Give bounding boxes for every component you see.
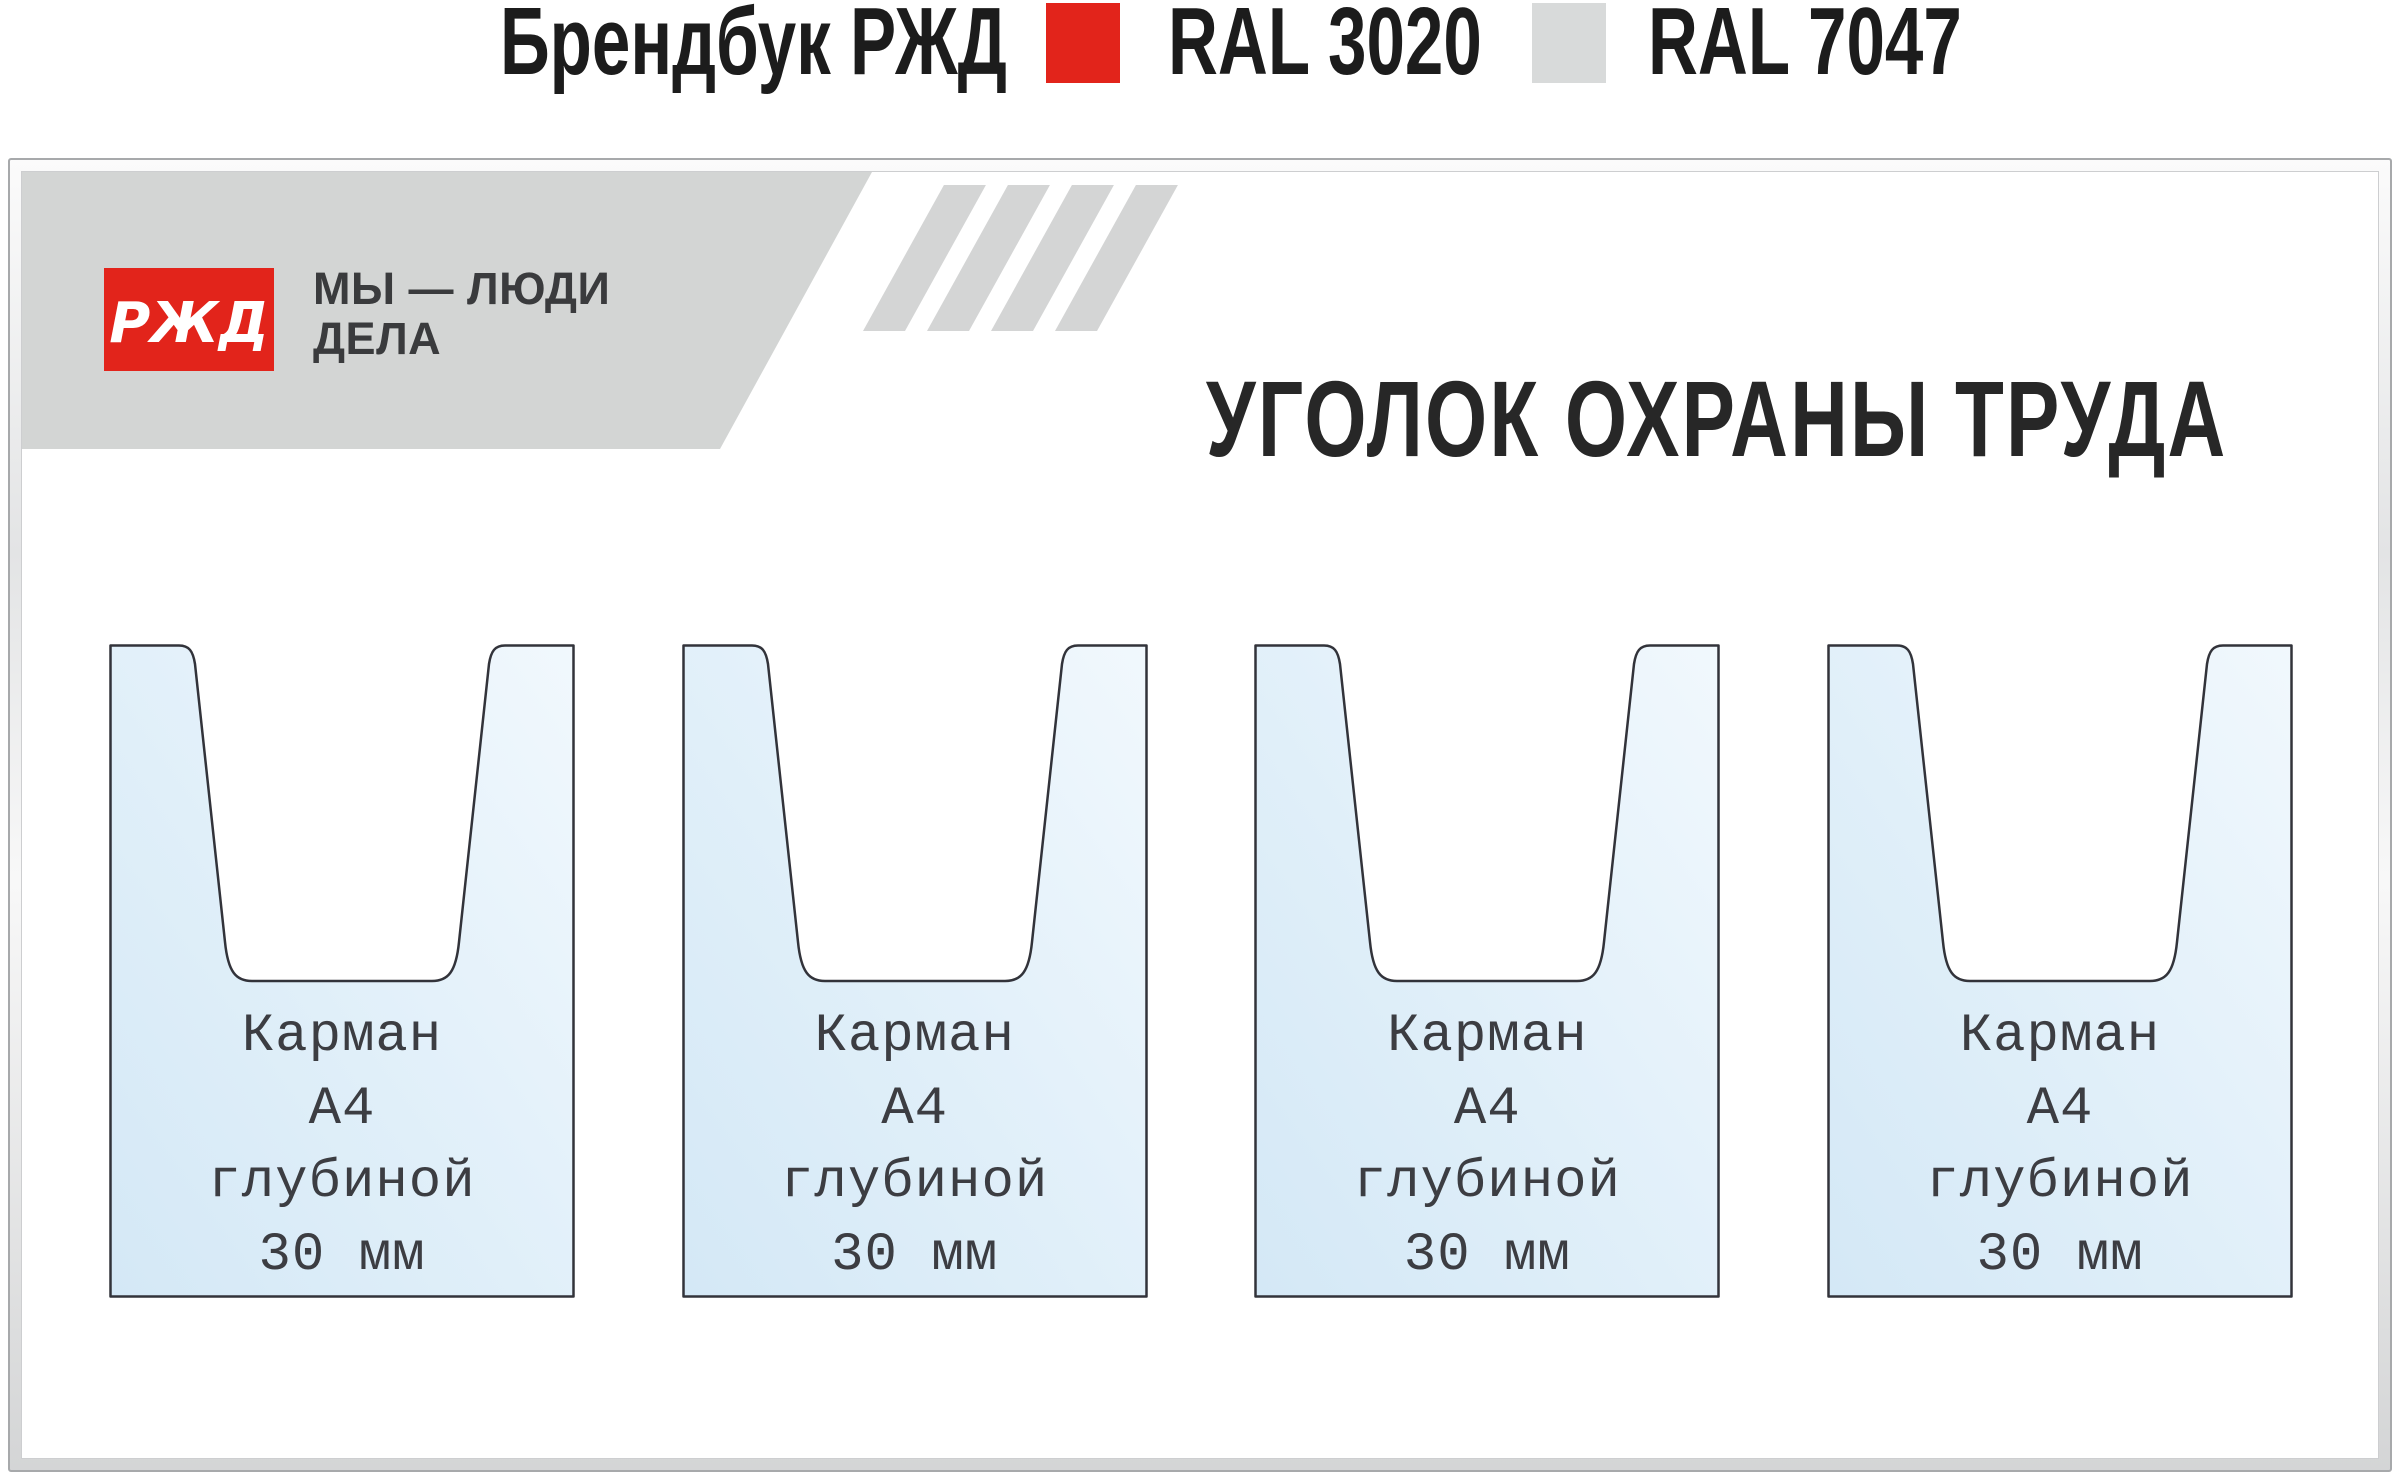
pocket-label: Карман А4 глубиной 30 мм	[109, 1000, 575, 1292]
stand-surface: РЖД МЫ — ЛЮДИ ДЕЛА УГОЛОК ОХРАНЫ ТРУДА	[21, 171, 2379, 1459]
ral-3020-swatch	[1046, 3, 1120, 83]
rzhd-logo-text: РЖД	[109, 291, 268, 356]
brandbook-label: Брендбук РЖД	[500, 0, 1007, 90]
pocket-label: Карман А4 глубиной 30 мм	[1827, 1000, 2293, 1292]
stand-board: РЖД МЫ — ЛЮДИ ДЕЛА УГОЛОК ОХРАНЫ ТРУДА	[8, 158, 2392, 1472]
pocket: Карман А4 глубиной 30 мм	[682, 644, 1148, 1298]
pocket-label: Карман А4 глубиной 30 мм	[1254, 1000, 1720, 1292]
slogan-line-1: МЫ — ЛЮДИ	[313, 264, 610, 314]
ral-7047-swatch	[1532, 3, 1606, 83]
board-title: УГОЛОК ОХРАНЫ ТРУДА	[1205, 365, 2227, 473]
rzhd-logo-mark: РЖД	[104, 268, 274, 371]
pocket-label: Карман А4 глубиной 30 мм	[682, 1000, 1148, 1292]
slogan-line-2: ДЕЛА	[313, 314, 610, 364]
pockets-row: Карман А4 глубиной 30 мм Карман А4 глуби…	[109, 644, 2293, 1298]
rzhd-logo: РЖД	[104, 268, 274, 371]
pocket: Карман А4 глубиной 30 мм	[109, 644, 575, 1298]
ral-3020-label: RAL 3020	[1168, 0, 1482, 90]
pocket: Карман А4 глубиной 30 мм	[1254, 644, 1720, 1298]
ral-7047-label: RAL 7047	[1648, 0, 1962, 90]
brandbook-sheet: Брендбук РЖД RAL 3020 RAL 7047 РЖД МЫ — …	[0, 0, 2400, 1473]
pocket: Карман А4 глубиной 30 мм	[1827, 644, 2293, 1298]
slogan: МЫ — ЛЮДИ ДЕЛА	[313, 264, 610, 364]
